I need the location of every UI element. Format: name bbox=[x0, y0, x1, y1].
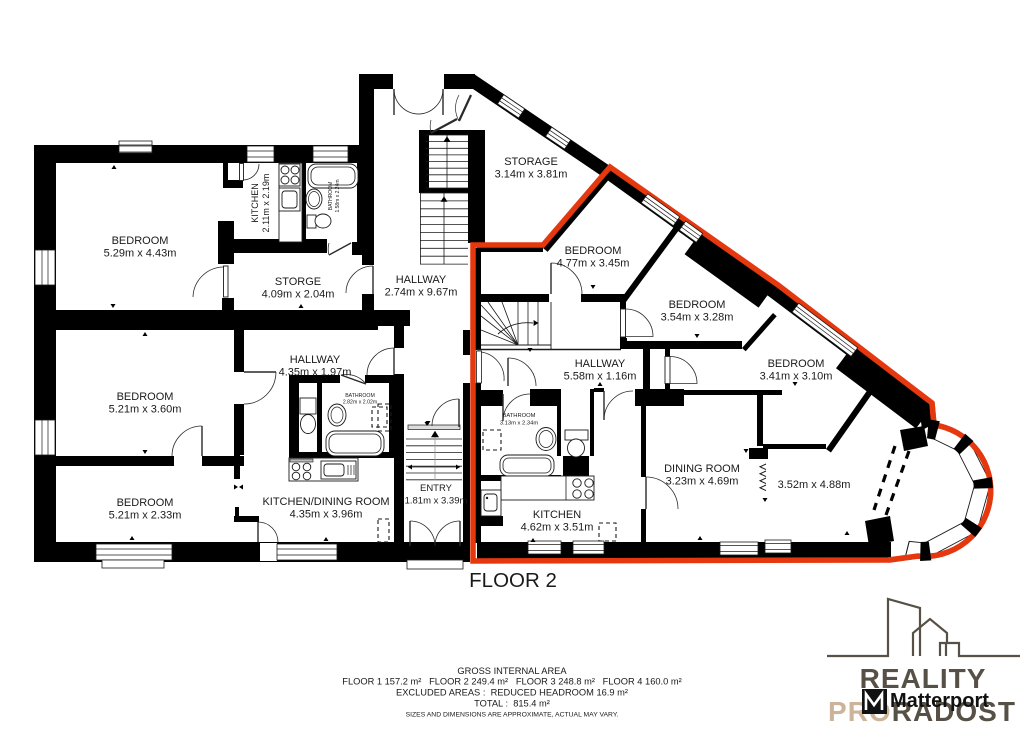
svg-text:BEDROOM: BEDROOM bbox=[565, 245, 622, 257]
svg-text:EXCLUDED AREAS : REDUCED HEAD: EXCLUDED AREAS : REDUCED HEADROOM 16.9 m… bbox=[396, 688, 628, 698]
svg-text:ENTRY: ENTRY bbox=[420, 483, 453, 494]
svg-text:4.35m x 1.97m: 4.35m x 1.97m bbox=[279, 366, 352, 378]
svg-text:BATHROOM: BATHROOM bbox=[328, 182, 334, 211]
svg-text:FLOOR 2: FLOOR 2 bbox=[469, 569, 557, 592]
svg-text:DINING ROOM: DINING ROOM bbox=[664, 463, 740, 475]
svg-text:BATHROOM: BATHROOM bbox=[502, 413, 535, 419]
svg-text:1.81m x 3.39m: 1.81m x 3.39m bbox=[405, 495, 468, 506]
svg-text:4.09m x 2.04m: 4.09m x 2.04m bbox=[262, 288, 335, 300]
svg-text:4.35m x 3.96m: 4.35m x 3.96m bbox=[290, 508, 363, 520]
svg-text:Matterport: Matterport bbox=[890, 690, 989, 712]
svg-text:GROSS INTERNAL AREA: GROSS INTERNAL AREA bbox=[457, 666, 567, 676]
svg-text:STORGE: STORGE bbox=[275, 276, 321, 288]
svg-text:2.11m x 2.19m: 2.11m x 2.19m bbox=[261, 174, 271, 233]
svg-text:FLOOR 1 157.2 m² FLOOR 2 249: FLOOR 1 157.2 m² FLOOR 2 249.4 m² FLOOR … bbox=[342, 677, 681, 687]
svg-text:TOTAL : 815.4 m²: TOTAL : 815.4 m² bbox=[474, 699, 550, 709]
svg-text:3.52m x 4.88m: 3.52m x 4.88m bbox=[778, 479, 851, 491]
svg-text:3.41m x 3.10m: 3.41m x 3.10m bbox=[760, 370, 833, 382]
svg-text:5.21m x 2.33m: 5.21m x 2.33m bbox=[109, 509, 182, 521]
svg-text:5.21m x 3.60m: 5.21m x 3.60m bbox=[109, 403, 182, 415]
svg-text:BEDROOM: BEDROOM bbox=[112, 235, 169, 247]
svg-text:5.29m x 4.43m: 5.29m x 4.43m bbox=[104, 247, 177, 259]
svg-text:3.13m x 2.34m: 3.13m x 2.34m bbox=[500, 421, 539, 427]
svg-text:3.14m x 3.81m: 3.14m x 3.81m bbox=[495, 168, 568, 180]
svg-text:KITCHEN/DINING ROOM: KITCHEN/DINING ROOM bbox=[262, 496, 389, 508]
svg-text:4.62m x 3.51m: 4.62m x 3.51m bbox=[521, 521, 594, 533]
svg-text:5.58m x 1.16m: 5.58m x 1.16m bbox=[564, 370, 637, 382]
svg-text:BATHROOM: BATHROOM bbox=[345, 393, 375, 399]
svg-text:KITCHEN: KITCHEN bbox=[533, 509, 581, 521]
svg-text:HALLWAY: HALLWAY bbox=[396, 274, 447, 286]
svg-text:SIZES AND DIMENSIONS ARE APPRO: SIZES AND DIMENSIONS ARE APPROXIMATE, AC… bbox=[406, 712, 619, 719]
svg-text:3.54m x 3.28m: 3.54m x 3.28m bbox=[661, 311, 734, 323]
svg-text:BEDROOM: BEDROOM bbox=[117, 497, 174, 509]
svg-text:BEDROOM: BEDROOM bbox=[669, 299, 726, 311]
svg-text:4.77m x 3.45m: 4.77m x 3.45m bbox=[557, 257, 630, 269]
svg-text:BEDROOM: BEDROOM bbox=[117, 391, 174, 403]
svg-text:HALLWAY: HALLWAY bbox=[575, 358, 626, 370]
svg-text:3.23m x 4.69m: 3.23m x 4.69m bbox=[666, 475, 739, 487]
svg-text:1.58m x 2.24m: 1.58m x 2.24m bbox=[335, 179, 341, 212]
svg-text:HALLWAY: HALLWAY bbox=[290, 354, 341, 366]
svg-text:2.82m x 2.02m: 2.82m x 2.02m bbox=[343, 400, 377, 406]
svg-text:2.74m x 9.67m: 2.74m x 9.67m bbox=[385, 286, 458, 298]
svg-text:KITCHEN: KITCHEN bbox=[250, 183, 260, 223]
svg-text:BEDROOM: BEDROOM bbox=[768, 358, 825, 370]
svg-text:STORAGE: STORAGE bbox=[504, 156, 558, 168]
